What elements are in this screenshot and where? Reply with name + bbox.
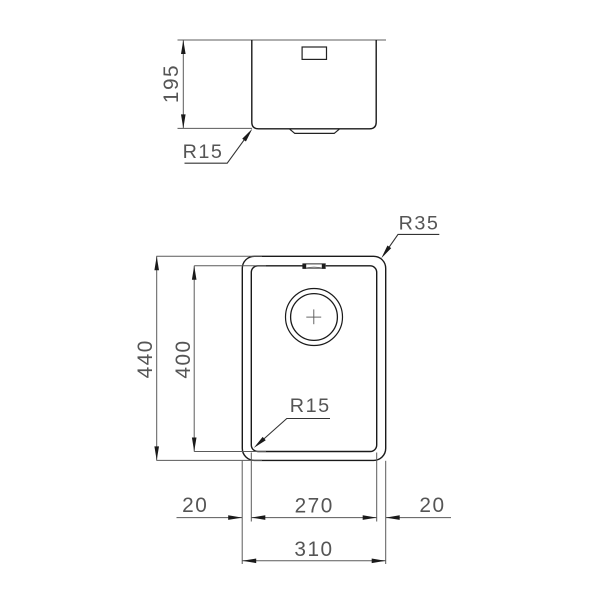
svg-text:20: 20 (419, 494, 445, 517)
svg-text:R35: R35 (399, 212, 440, 234)
svg-text:20: 20 (182, 494, 208, 517)
svg-text:400: 400 (172, 339, 195, 378)
svg-text:440: 440 (134, 339, 157, 378)
svg-text:270: 270 (295, 494, 334, 517)
svg-text:195: 195 (160, 64, 183, 103)
svg-text:R15: R15 (183, 141, 224, 163)
svg-text:R15: R15 (290, 395, 331, 417)
svg-text:310: 310 (294, 538, 333, 561)
